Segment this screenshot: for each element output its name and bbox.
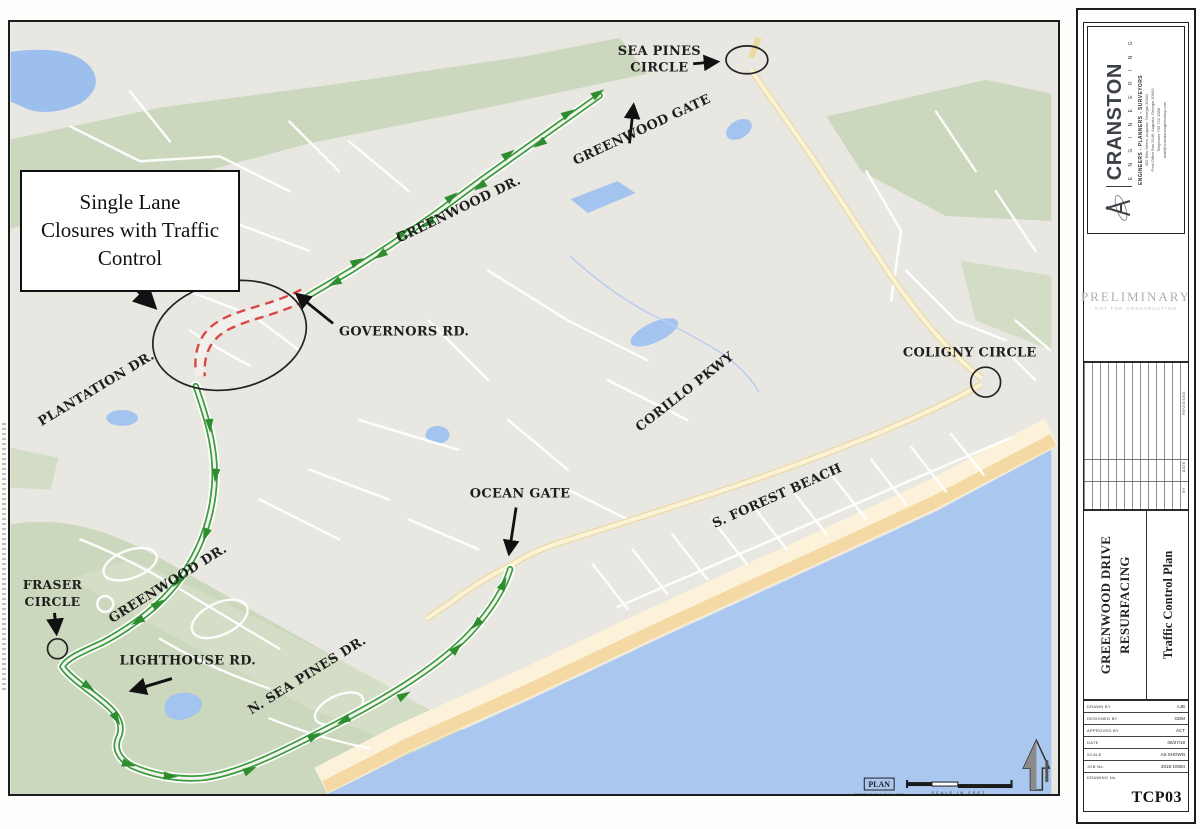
project-line2: RESURFACING (1115, 556, 1135, 654)
sheet-title-column: Traffic Control Plan (1147, 511, 1188, 699)
map-area: SEA PINES CIRCLE GREENWOOD GATE GREENWOO… (8, 20, 1060, 796)
titleblock-inner: CRANSTON E N G I N E E R I N G ENGINEERS… (1083, 22, 1189, 812)
revision-table: REVISIONS DATE BY (1084, 363, 1188, 511)
closure-callout-box: Single Lane Closures with Traffic Contro… (20, 170, 240, 292)
plot-stamp-text (2, 420, 6, 690)
revision-col-header: DATE (1182, 461, 1186, 472)
scale-units-label: SCALE IN FEET (931, 790, 986, 794)
callout-line2: Closures with Traffic (41, 217, 219, 245)
plan-scale-note: GRAPHIC SCALE: 1" = 300' (854, 792, 904, 794)
preliminary-stamp: PRELIMINARY NOT FOR CONSTRUCTION (1084, 237, 1188, 363)
svg-text:CIRCLE: CIRCLE (25, 594, 81, 609)
coligny-circle-symbol (971, 367, 1001, 397)
fraser-circle-label: FRASER (23, 577, 83, 592)
plantation-dr-label: PLANTATION DR. (36, 348, 157, 429)
greenwood-dr-upper-label: GREENWOOD DR. (394, 173, 523, 246)
compass-icon (1104, 193, 1134, 223)
logo-divider (1106, 186, 1132, 187)
sheet-number-cell: DRAWING No. TCP03 (1084, 773, 1188, 811)
firm-logo-box: CRANSTON E N G I N E E R I N G ENGINEERS… (1087, 26, 1185, 234)
preliminary-text: PRELIMINARY (1081, 289, 1191, 305)
revision-col-header: BY (1182, 487, 1186, 493)
plan-label: PLAN (868, 780, 890, 789)
sheet-title: Traffic Control Plan (1147, 515, 1189, 695)
titleblock: CRANSTON E N G I N E E R I N G ENGINEERS… (1076, 8, 1196, 824)
sea-pines-circle-label: SEA PINES (618, 44, 701, 59)
callout-line1: Single Lane (80, 189, 181, 217)
info-row-date: DATE 06/27/18 (1084, 737, 1188, 749)
info-row-designed: DESIGNED BY GDM (1084, 713, 1188, 725)
project-title-box: GREENWOOD DRIVE RESURFACING Traffic Cont… (1084, 511, 1188, 701)
revision-col-header: REVISIONS (1182, 391, 1186, 415)
project-line1: GREENWOOD DRIVE (1096, 536, 1116, 675)
firm-address-4: mail@cranstonengineering.com (1162, 102, 1168, 158)
firm-subtitle: E N G I N E E R I N G (1128, 37, 1134, 180)
corillo-pkwy-label: CORILLO PKWY (633, 349, 737, 435)
lighthouse-rd-label: LIGHTHOUSE RD. (120, 654, 257, 669)
traffic-control-map: SEA PINES CIRCLE GREENWOOD GATE GREENWOO… (10, 22, 1058, 794)
coligny-circle-label: COLIGNY CIRCLE (903, 345, 1037, 360)
callout-line3: Control (98, 245, 162, 273)
drawing-info-table: DRAWN BY AJB DESIGNED BY GDM APPROVED BY… (1084, 701, 1188, 811)
info-row-approved: APPROVED BY ACT (1084, 725, 1188, 737)
sheet-number: TCP03 (1132, 789, 1183, 807)
preliminary-subtext: NOT FOR CONSTRUCTION (1095, 306, 1177, 311)
info-row-drawn: DRAWN BY AJB (1084, 701, 1188, 713)
svg-text:CIRCLE: CIRCLE (630, 61, 688, 76)
info-row-scale: SCALE AS SHOWN (1084, 749, 1188, 761)
ocean-gate-label: OCEAN GATE (470, 487, 571, 502)
firm-name: CRANSTON (1104, 37, 1127, 180)
project-name-column: GREENWOOD DRIVE RESURFACING (1084, 511, 1147, 699)
sea-pines-circle-symbol (726, 46, 768, 74)
revision-divider (1084, 481, 1188, 482)
governors-rd-label: GOVERNORS RD. (339, 324, 469, 339)
info-row-job: JOB No. 2018-10084 (1084, 761, 1188, 773)
revision-divider (1084, 459, 1188, 460)
